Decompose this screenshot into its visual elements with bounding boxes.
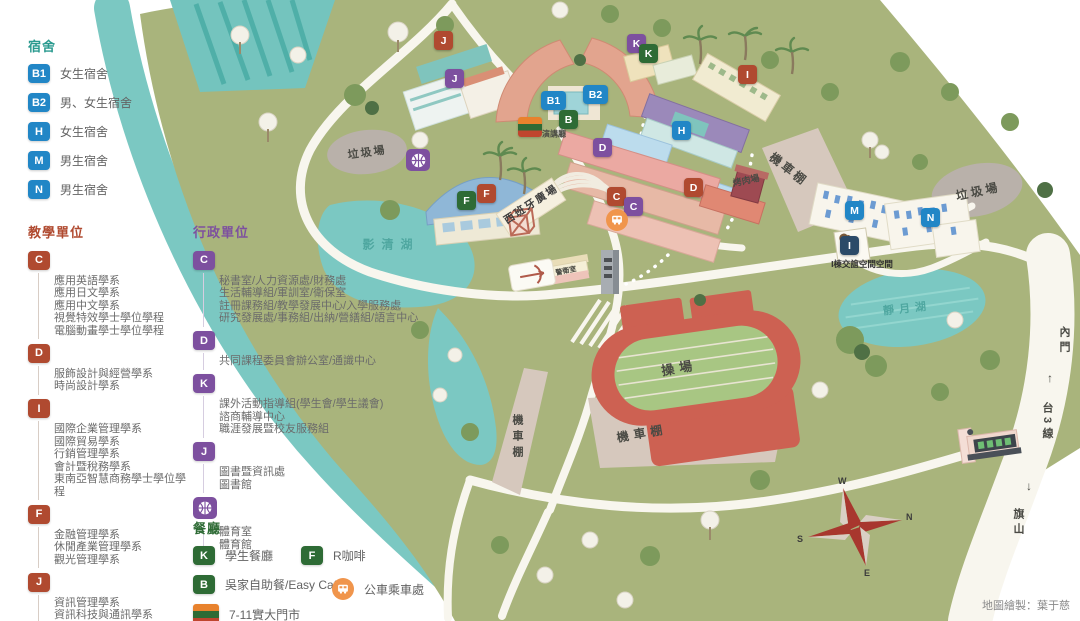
dept-line: 服飾設計與經營學系 <box>54 368 196 381</box>
legend-group-c: C 應用英語學系 應用日文學系 應用中文學系 視覺特效學士學位學程 電腦動畫學士… <box>28 250 196 339</box>
legend-item: N 男生宿舍 <box>28 180 132 199</box>
legend-item-label: 女生宿舍 <box>60 65 108 82</box>
legend-admin-title: 行政單位 <box>193 222 428 241</box>
legend-teaching-title: 教學單位 <box>28 222 196 241</box>
dept-line: 觀光管理學系 <box>54 554 196 567</box>
legend-item: M 男生宿舍 <box>28 151 132 170</box>
dept-line: 資訊科技與通訊學系 <box>54 609 196 621</box>
legend-group-j: J 圖書暨資訊處 圖書館 <box>193 442 428 494</box>
office-line: 圖書館 <box>219 479 428 492</box>
place-label-i-lounge: I棟交誼空間空間 <box>831 258 893 270</box>
dept-line: 東南亞智慧商務學士學位學程 <box>54 473 196 498</box>
compass-e: E <box>864 568 870 578</box>
map-marker-i-lounge: I <box>840 236 859 255</box>
compass-w: W <box>838 476 847 486</box>
legend-item-label: 男生宿舍 <box>60 181 108 198</box>
dept-line: 國際貿易學系 <box>54 436 196 449</box>
map-marker-m: M <box>845 201 864 220</box>
dept-line: 應用中文學系 <box>54 300 196 313</box>
legend-item-label: R咖啡 <box>333 547 366 564</box>
map-marker-d-purple: D <box>593 138 612 157</box>
legend-item-label: 男、女生宿舍 <box>60 94 132 111</box>
legend-dorm-title: 宿舍 <box>28 36 132 55</box>
badge-c: C <box>193 251 215 270</box>
dept-line: 應用英語學系 <box>54 275 196 288</box>
road-label-qishan: 旗山 <box>1010 508 1026 538</box>
badge-k: K <box>193 546 215 565</box>
office-line: 諮商輔導中心 <box>219 411 428 424</box>
legend-item-label: 女生宿舍 <box>60 123 108 140</box>
legend-group-f: F 金融管理學系 休閒產業管理學系 觀光管理學系 <box>28 504 196 568</box>
badge-f: F <box>301 546 323 565</box>
legend-dormitories: 宿舍 B1 女生宿舍 B2 男、女生宿舍 H 女生宿舍 M 男生宿舍 N 男生宿… <box>28 36 132 209</box>
legend-item-label: 吳家自助餐/Easy Cafe <box>225 576 344 593</box>
office-line: 研究發展處/事務組/出納/營繕組/語言中心 <box>219 312 428 325</box>
map-marker-f-green: F <box>457 191 476 210</box>
legend-item: H 女生宿舍 <box>28 122 132 141</box>
map-marker-b1: B1 <box>541 91 566 110</box>
dept-line: 會計暨稅務學系 <box>54 461 196 474</box>
map-marker-k-green: K <box>639 44 658 63</box>
map-marker-j-purple: J <box>445 69 464 88</box>
office-line: 生活輔導組/軍訓室/衛保室 <box>219 287 428 300</box>
road-label-route-tai3: 台3線 <box>1039 402 1055 442</box>
basketball-icon <box>193 497 217 519</box>
place-label-lecture-hall: 演講廳 <box>542 129 566 140</box>
dept-line: 電腦動畫學士學位學程 <box>54 325 196 338</box>
dept-line: 應用日文學系 <box>54 287 196 300</box>
road-label-neimen: 內門 <box>1056 326 1072 356</box>
seven-eleven-icon <box>518 117 542 137</box>
badge-j: J <box>28 573 50 592</box>
dept-line: 休閒產業管理學系 <box>54 541 196 554</box>
legend-dining: 餐廳 K 學生餐廳 F R咖啡 B 吳家自助餐/Easy Cafe 7-11實大… <box>193 518 433 621</box>
badge-d: D <box>28 344 50 363</box>
legend-bus-stop: 公車乘車處 <box>332 578 424 600</box>
bus-icon <box>332 578 354 600</box>
road-arrow-down: ↓ <box>1026 479 1032 493</box>
badge-b1: B1 <box>28 64 50 83</box>
badge-d: D <box>193 331 215 350</box>
legend-item: 7-11實大門市 <box>193 604 433 621</box>
basketball-icon <box>406 149 430 171</box>
map-marker-i-red: I <box>738 65 757 84</box>
dept-line: 行銷管理學系 <box>54 448 196 461</box>
map-marker-b2: B2 <box>583 85 608 104</box>
legend-group-j: J 資訊管理學系 資訊科技與通訊學系 資訊模擬與設計學系 <box>28 572 196 621</box>
map-marker-n: N <box>921 208 940 227</box>
map-credit: 地圖繪製：葉于慈 <box>982 597 1070 613</box>
office-line: 共同課程委員會辦公室/通識中心 <box>219 355 428 368</box>
office-line: 職涯發展暨校友服務組 <box>219 423 428 436</box>
office-line: 秘書室/人力資源處/財務處 <box>219 275 428 288</box>
legend-group-i: I 國際企業管理學系 國際貿易學系 行銷管理學系 會計暨稅務學系 東南亞智慧商務… <box>28 399 196 501</box>
bus-icon <box>606 209 628 231</box>
compass-s: S <box>797 534 803 544</box>
badge-m: M <box>28 151 50 170</box>
legend-group-d: D 共同課程委員會辦公室/通識中心 <box>193 331 428 370</box>
office-line: 圖書暨資訊處 <box>219 466 428 479</box>
legend-item: B2 男、女生宿舍 <box>28 93 132 112</box>
legend-item-label: 男生宿舍 <box>60 152 108 169</box>
legend-item-label: 7-11實大門市 <box>229 606 300 621</box>
legend-item-label: 公車乘車處 <box>364 581 424 598</box>
road-arrow-up: ↑ <box>1047 371 1053 385</box>
legend-group-k: K 課外活動指導組(學生會/學生議會) 諮商輔導中心 職涯發展暨校友服務組 <box>193 374 428 438</box>
legend-dining-title: 餐廳 <box>193 518 433 537</box>
badge-i: I <box>28 399 50 418</box>
legend-item-label: 學生餐廳 <box>225 547 273 564</box>
legend-teaching-units: 教學單位 C 應用英語學系 應用日文學系 應用中文學系 視覺特效學士學位學程 電… <box>28 222 196 621</box>
place-label-bike-shed-west: 機車棚 <box>509 414 525 462</box>
dept-line: 國際企業管理學系 <box>54 423 196 436</box>
badge-k: K <box>193 374 215 393</box>
badge-b: B <box>193 575 215 594</box>
map-marker-j-red: J <box>434 31 453 50</box>
badge-j: J <box>193 442 215 461</box>
compass-n: N <box>906 512 913 522</box>
badge-h: H <box>28 122 50 141</box>
badge-b2: B2 <box>28 93 50 112</box>
dept-line: 金融管理學系 <box>54 529 196 542</box>
legend-group-d: D 服飾設計與經營學系 時尚設計學系 <box>28 343 196 395</box>
legend-item: F R咖啡 <box>301 546 366 565</box>
dept-line: 視覺特效學士學位學程 <box>54 312 196 325</box>
badge-c: C <box>28 251 50 270</box>
dept-line: 資訊管理學系 <box>54 597 196 610</box>
legend-group-c: C 秘書室/人力資源處/財務處 生活輔導組/軍訓室/衛保室 註冊課務組/教學發展… <box>193 250 428 327</box>
map-marker-c-purple: C <box>624 197 643 216</box>
badge-f: F <box>28 505 50 524</box>
campus-map-page: 宿舍 B1 女生宿舍 B2 男、女生宿舍 H 女生宿舍 M 男生宿舍 N 男生宿… <box>0 0 1080 621</box>
map-marker-d-red: D <box>684 178 703 197</box>
legend-item: B1 女生宿舍 <box>28 64 132 83</box>
map-marker-b-green: B <box>559 110 578 129</box>
map-marker-h: H <box>672 121 691 140</box>
legend-item: K 學生餐廳 <box>193 546 273 565</box>
map-marker-f-red: F <box>477 184 496 203</box>
office-line: 課外活動指導組(學生會/學生議會) <box>219 398 428 411</box>
badge-n: N <box>28 180 50 199</box>
office-line: 註冊課務組/教學發展中心/入學服務處 <box>219 300 428 313</box>
seven-eleven-icon <box>193 604 219 621</box>
legend-admin-units: 行政單位 C 秘書室/人力資源處/財務處 生活輔導組/軍訓室/衛保室 註冊課務組… <box>193 222 428 557</box>
dept-line: 時尚設計學系 <box>54 380 196 393</box>
